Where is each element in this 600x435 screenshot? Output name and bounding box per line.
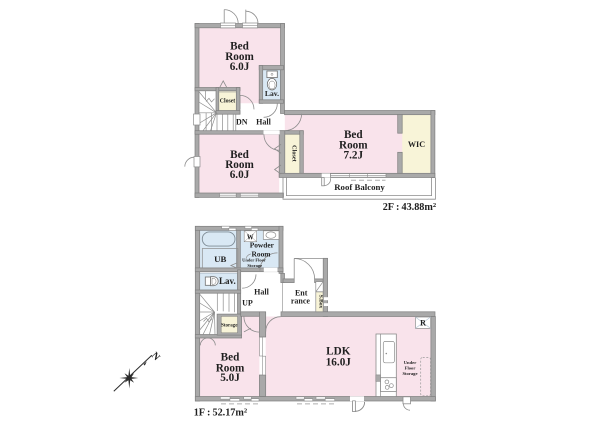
svg-text:7.2J: 7.2J <box>344 150 364 162</box>
svg-text:Under Floor: Under Floor <box>242 257 266 262</box>
svg-text:Under: Under <box>404 360 417 365</box>
svg-text:Storage: Storage <box>402 371 417 376</box>
svg-text:UB: UB <box>214 254 226 264</box>
svg-text:Lav.: Lav. <box>219 276 236 286</box>
svg-text:6.0J: 6.0J <box>230 61 250 73</box>
svg-text:Hall: Hall <box>256 117 271 126</box>
svg-text:UP: UP <box>242 299 253 308</box>
svg-text:Hall: Hall <box>254 288 269 297</box>
svg-text:W: W <box>247 234 254 241</box>
svg-text:1F : 52.17m2: 1F : 52.17m2 <box>194 407 248 418</box>
svg-text:6.0J: 6.0J <box>230 169 250 181</box>
svg-text:Storage: Storage <box>221 323 238 328</box>
svg-text:Lav.: Lav. <box>265 89 279 98</box>
svg-text:Closet: Closet <box>220 99 236 105</box>
svg-text:WIC: WIC <box>408 140 425 149</box>
svg-text:Powder: Powder <box>250 241 275 250</box>
svg-text:Roof Balcony: Roof Balcony <box>334 182 385 192</box>
svg-text:2F : 43.88m2: 2F : 43.88m2 <box>383 202 437 213</box>
svg-text:rance: rance <box>291 296 311 305</box>
svg-text:Storage: Storage <box>247 263 262 268</box>
svg-text:Closet: Closet <box>290 145 297 162</box>
svg-text:Floor: Floor <box>405 366 416 371</box>
svg-text:16.0J: 16.0J <box>326 356 352 368</box>
svg-text:DN: DN <box>236 117 248 126</box>
svg-text:S.Box: S.Box <box>318 295 324 309</box>
svg-text:R: R <box>420 319 426 328</box>
svg-text:5.0J: 5.0J <box>220 372 240 384</box>
